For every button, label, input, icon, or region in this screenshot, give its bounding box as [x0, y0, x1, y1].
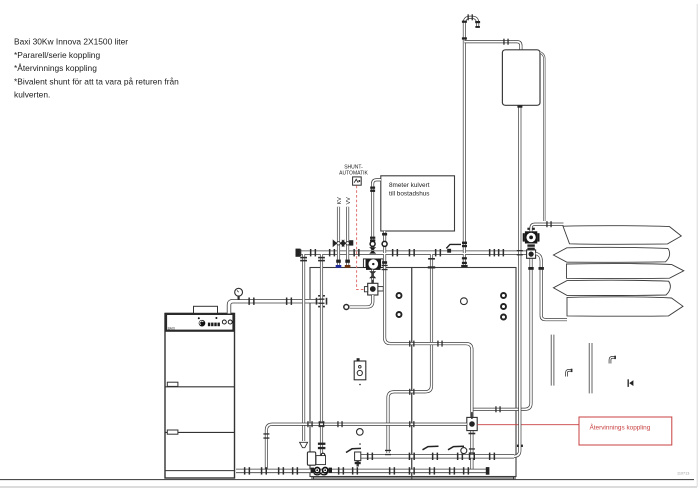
svg-text:Baxi 30Kw Innova 2X1500 liter: Baxi 30Kw Innova 2X1500 liter: [14, 37, 128, 47]
svg-text:Återvinnings koppling: Återvinnings koppling: [590, 423, 651, 432]
svg-text:SHUNT-: SHUNT-: [344, 164, 363, 170]
svg-text:8meter kulvert: 8meter kulvert: [389, 182, 430, 189]
svg-text:till bostadshus: till bostadshus: [389, 190, 430, 197]
svg-text:VV: VV: [346, 197, 352, 205]
svg-text:BAXI: BAXI: [168, 327, 175, 331]
svg-text:AUTOMATIK: AUTOMATIK: [339, 171, 368, 177]
svg-text:*Bivalent shunt för att ta var: *Bivalent shunt för att ta vara på retur…: [14, 76, 179, 86]
svg-text:KV: KV: [337, 197, 343, 205]
svg-text:*Pararell/serie koppling: *Pararell/serie koppling: [14, 50, 100, 60]
svg-text:kulverten.: kulverten.: [14, 90, 50, 100]
svg-text:*Återvinnings koppling: *Återvinnings koppling: [14, 63, 97, 73]
svg-text:110713: 110713: [677, 472, 689, 476]
